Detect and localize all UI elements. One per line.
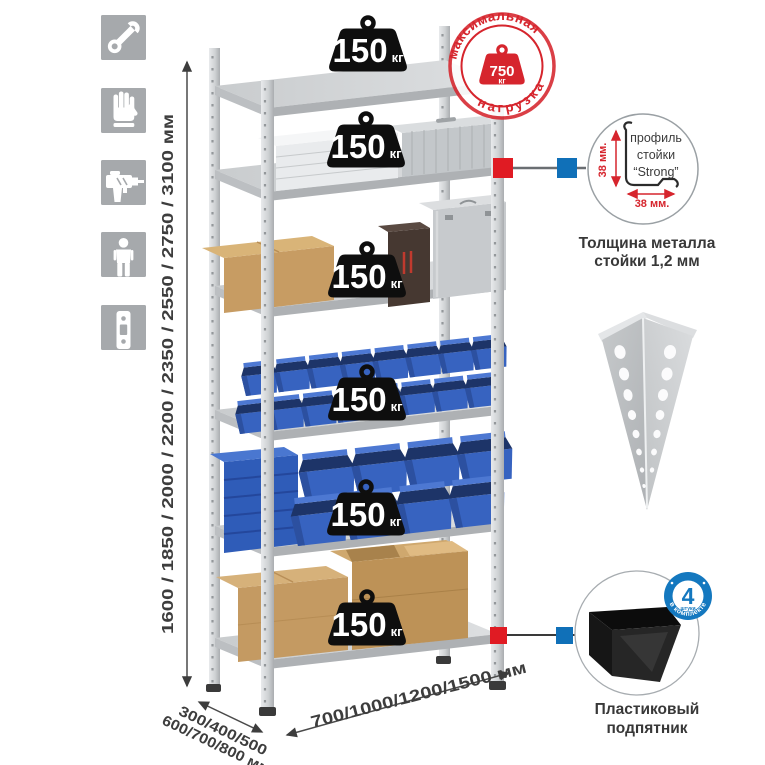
width-dimension-label: 700/1000/1200/1500 мм — [309, 659, 528, 732]
rack-post-front-right — [491, 54, 504, 687]
profile-horizontal-dim: 38 мм. — [635, 198, 670, 210]
rack-post-back-left — [209, 48, 220, 690]
aluminum-case — [388, 116, 498, 177]
load-badge-2: 150кг — [327, 114, 405, 168]
profile-label-3: “Strong” — [633, 165, 678, 179]
included-count-badge: 4 штуки в комплекте — [664, 572, 712, 620]
load-badge-1: 150кг — [329, 18, 407, 72]
gloves-icon — [101, 88, 146, 133]
foot-caption-line2: подпятник — [606, 720, 687, 737]
height-dimension: 1600 / 1850 / 2000 / 2200 / 2350 / 2550 … — [160, 62, 187, 686]
rack-foot — [259, 707, 276, 716]
profile-label-1: профиль — [630, 131, 682, 145]
profile-vertical-dim: 38 мм. — [597, 143, 609, 178]
rack-foot — [436, 656, 451, 664]
callout-red-square-top — [493, 158, 513, 178]
max-load-stamp: максимальная нагрузка 750 кг — [435, 0, 567, 129]
infographic-canvas: 1600 / 1850 / 2000 / 2200 / 2350 / 2550 … — [0, 0, 765, 765]
post-profile-detail: 38 мм. 38 мм. профиль стойки “Strong” То… — [493, 114, 716, 270]
svg-text:кг: кг — [498, 77, 506, 86]
drill-icon — [101, 160, 146, 205]
rack-foot — [206, 684, 221, 692]
profile-caption-line1: Толщина металла — [579, 235, 716, 252]
profile-label-2: стойки — [637, 148, 675, 162]
profile-caption-line2: стойки 1,2 мм — [594, 253, 699, 270]
foot-caption-line1: Пластиковый — [595, 701, 700, 718]
rack-post-front-left — [261, 80, 274, 713]
height-dimension-label: 1600 / 1850 / 2000 / 2200 / 2350 / 2550 … — [160, 114, 177, 634]
product-infographic: 1600 / 1850 / 2000 / 2200 / 2350 / 2550 … — [0, 0, 765, 765]
callout-blue-square-top — [557, 158, 577, 178]
callout-blue-square-bottom — [556, 627, 573, 644]
person-icon — [101, 232, 146, 277]
plastic-foot-detail: 4 штуки в комплекте Пластиковый подпятни… — [490, 571, 712, 737]
angle-post-image — [598, 312, 697, 510]
assembly-icons-column — [101, 15, 146, 350]
width-dimension: 700/1000/1200/1500 мм — [287, 659, 528, 735]
callout-red-square-bottom — [490, 627, 507, 644]
wrench-icon — [101, 15, 146, 60]
rack-post-icon — [101, 305, 146, 350]
